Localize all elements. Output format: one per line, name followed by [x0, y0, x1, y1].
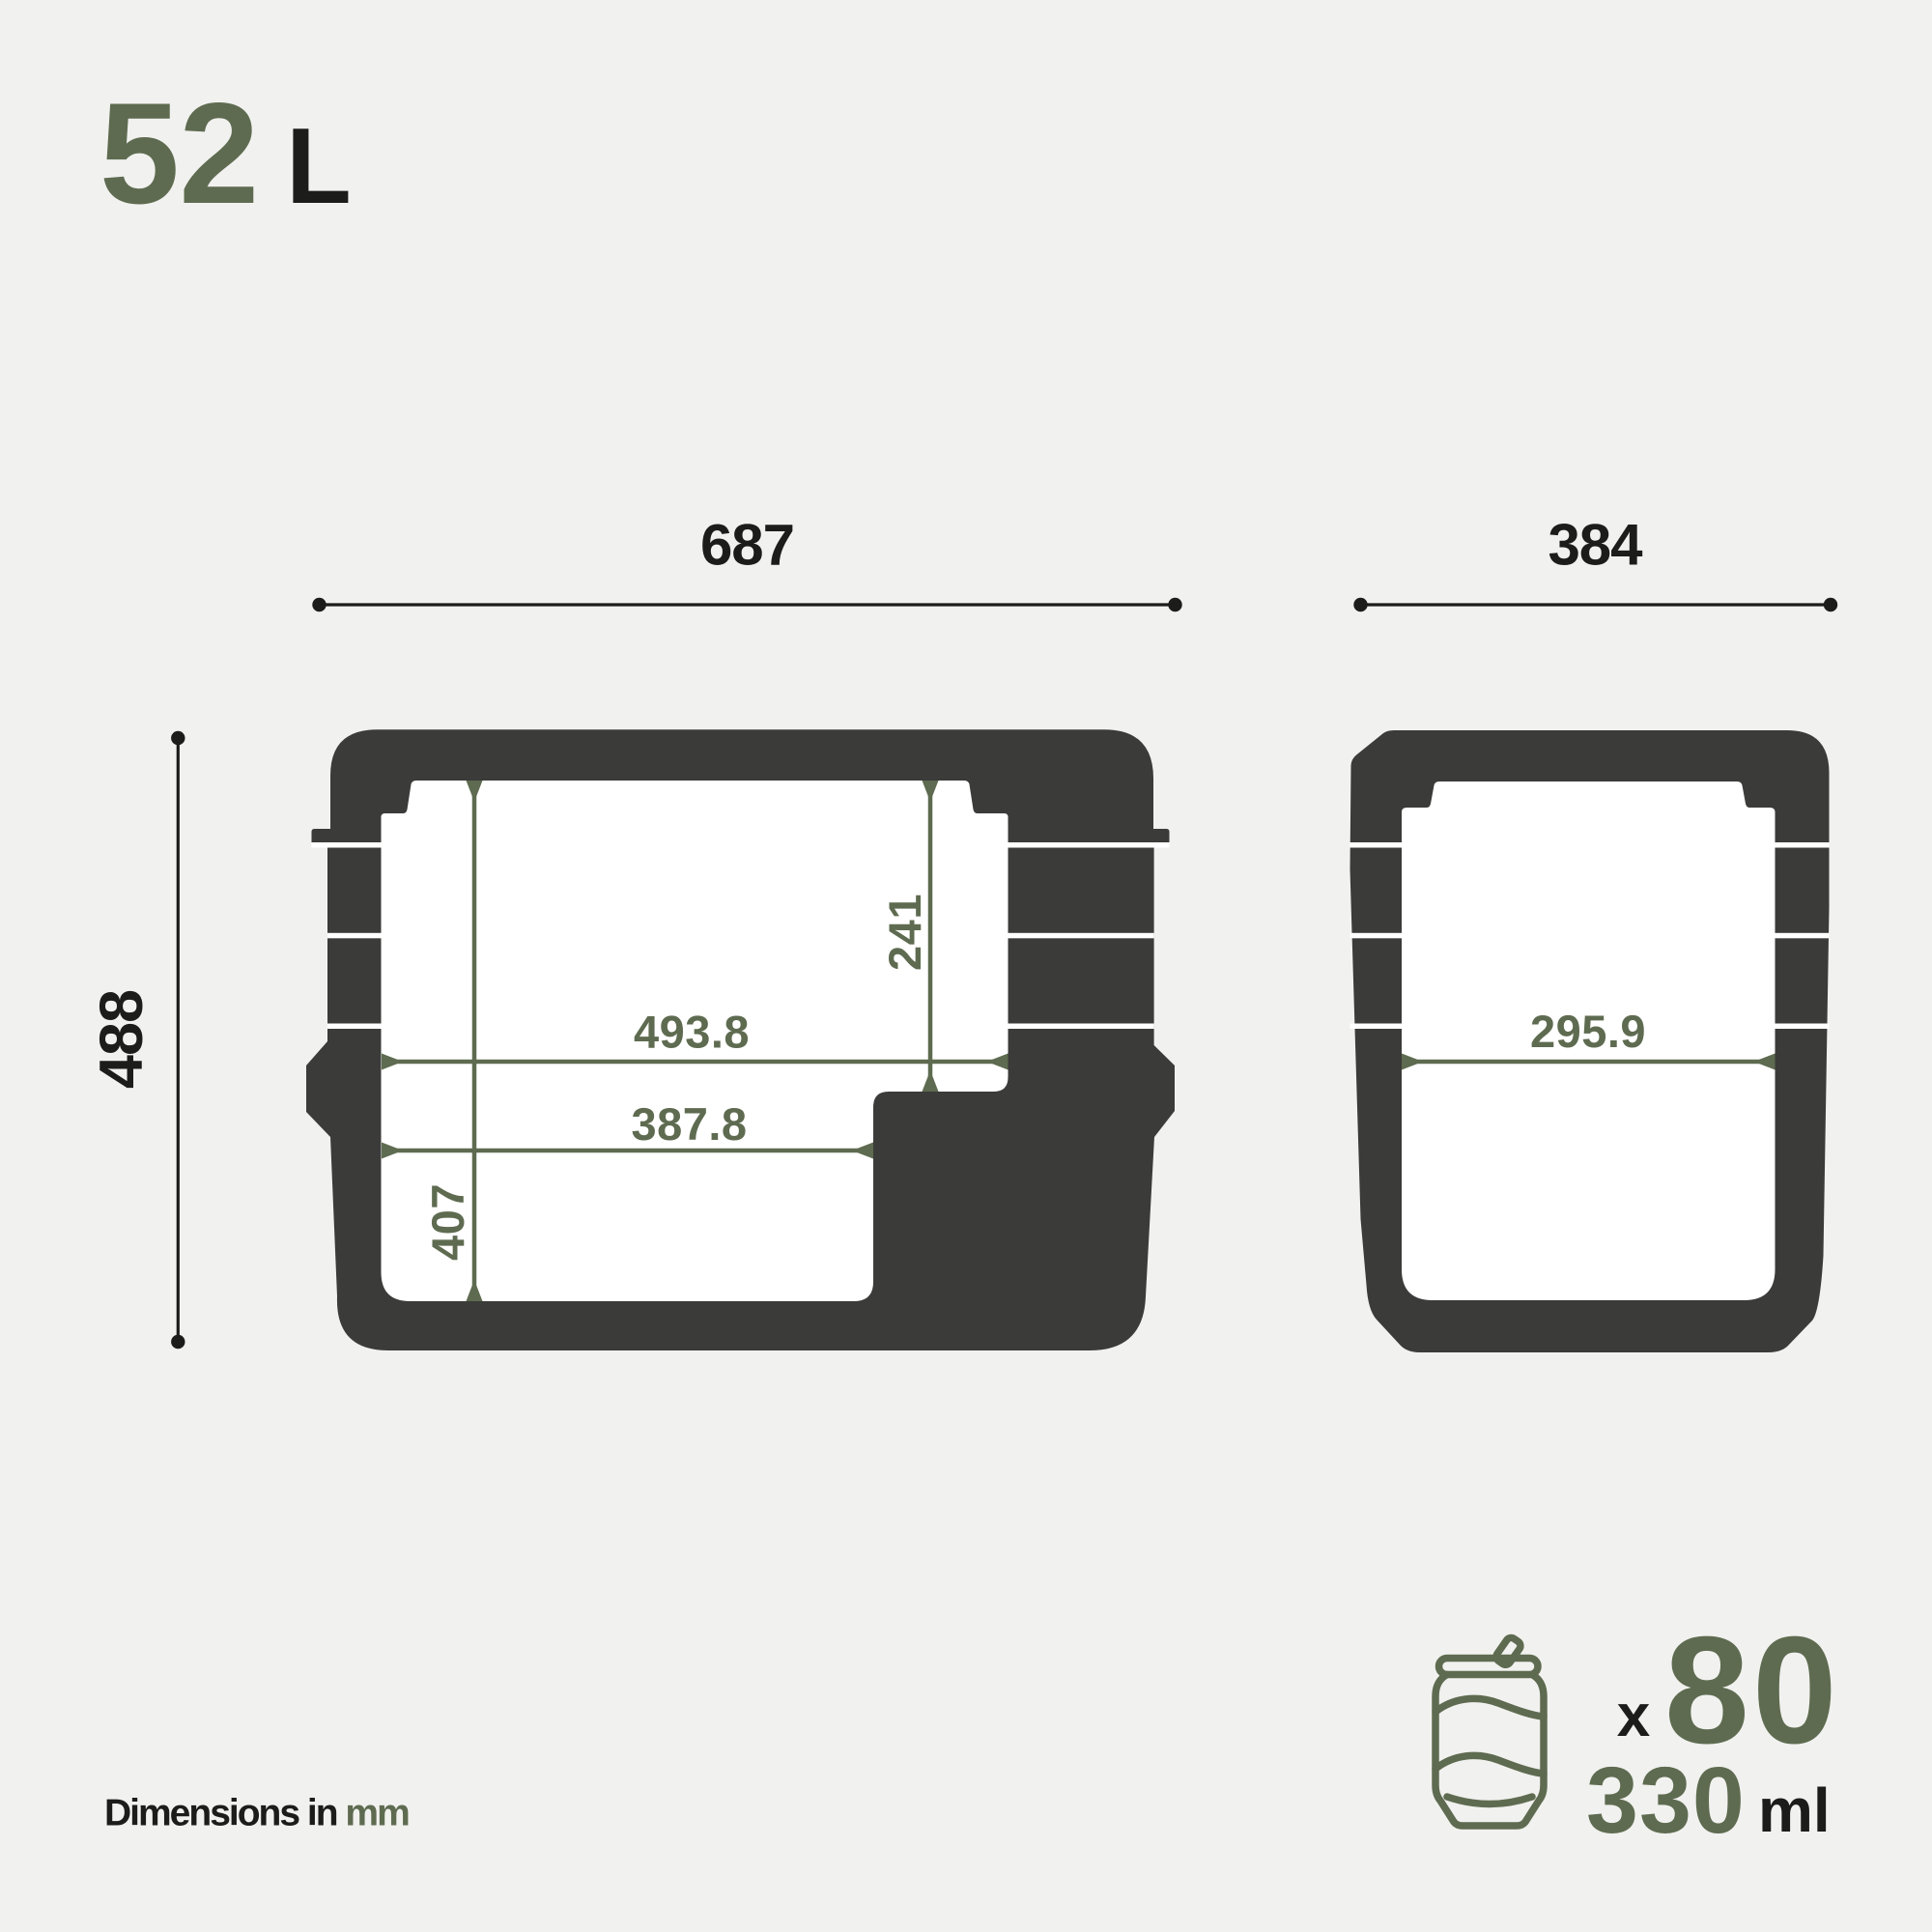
svg-text:Dimensions in mm: Dimensions in mm: [104, 1793, 409, 1834]
svg-text:387.8: 387.8: [631, 1098, 747, 1150]
svg-text:407: 407: [422, 1183, 473, 1261]
svg-text:295.9: 295.9: [1530, 1006, 1646, 1057]
svg-text:687: 687: [700, 513, 794, 578]
svg-text:52: 52: [99, 72, 259, 234]
svg-text:L: L: [286, 106, 352, 226]
svg-text:x: x: [1617, 1683, 1651, 1749]
svg-text:241: 241: [879, 894, 930, 971]
svg-text:488: 488: [88, 990, 156, 1089]
svg-text:ml: ml: [1758, 1776, 1831, 1845]
svg-text:493.8: 493.8: [634, 1007, 750, 1058]
svg-text:384: 384: [1548, 513, 1643, 578]
svg-text:330: 330: [1586, 1747, 1746, 1853]
